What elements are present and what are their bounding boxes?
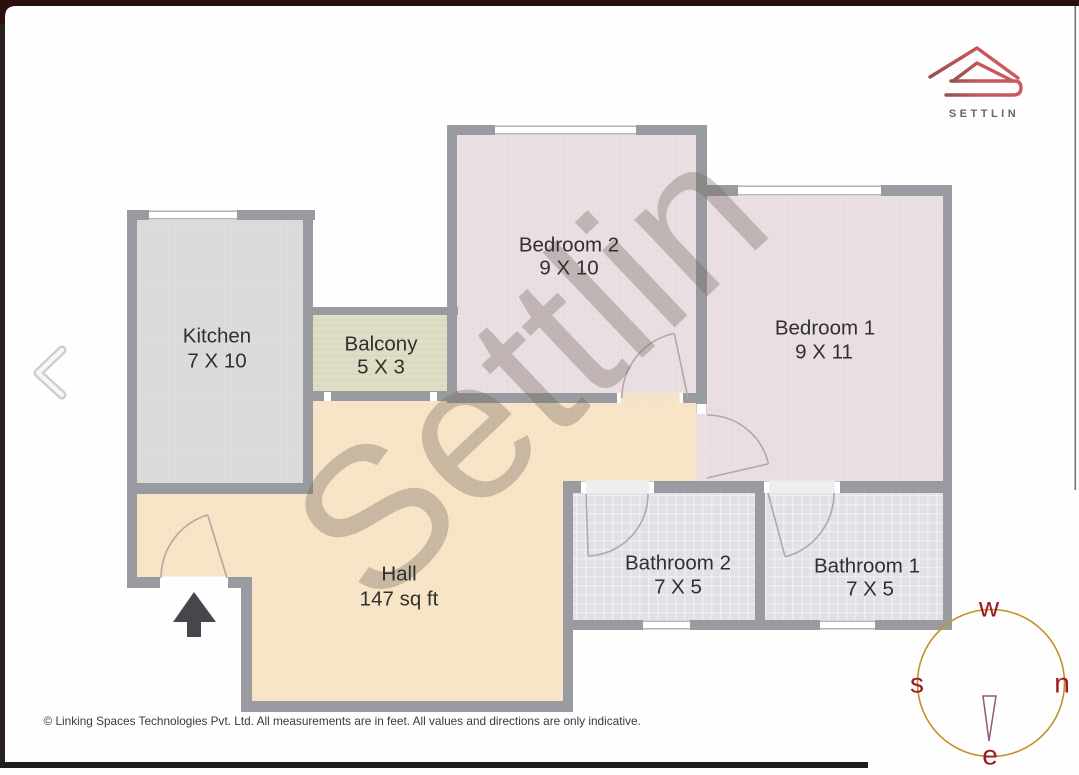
svg-text:Bathroom 1: Bathroom 1 (814, 555, 920, 578)
svg-text:Hall: Hall (381, 563, 416, 586)
svg-text:9 X 10: 9 X 10 (539, 257, 598, 280)
svg-text:w: w (978, 592, 1000, 623)
svg-text:7 X 10: 7 X 10 (187, 350, 246, 373)
svg-text:Balcony: Balcony (345, 333, 419, 356)
svg-text:9 X 11: 9 X 11 (795, 341, 853, 364)
svg-text:© Linking Spaces Technologies: © Linking Spaces Technologies Pvt. Ltd. … (44, 714, 641, 728)
svg-text:7 X 5: 7 X 5 (846, 578, 894, 601)
svg-text:Bedroom 2: Bedroom 2 (519, 234, 619, 257)
svg-text:7 X 5: 7 X 5 (654, 576, 702, 599)
svg-text:SETTLIN: SETTLIN (949, 108, 1019, 120)
svg-text:Bedroom 1: Bedroom 1 (775, 317, 875, 340)
svg-text:Bathroom 2: Bathroom 2 (625, 552, 731, 575)
svg-text:s: s (910, 668, 924, 699)
svg-text:e: e (982, 740, 998, 771)
svg-text:5 X 3: 5 X 3 (357, 356, 405, 379)
svg-text:Kitchen: Kitchen (183, 325, 251, 348)
svg-text:147 sq ft: 147 sq ft (360, 588, 439, 611)
svg-text:n: n (1054, 668, 1070, 699)
